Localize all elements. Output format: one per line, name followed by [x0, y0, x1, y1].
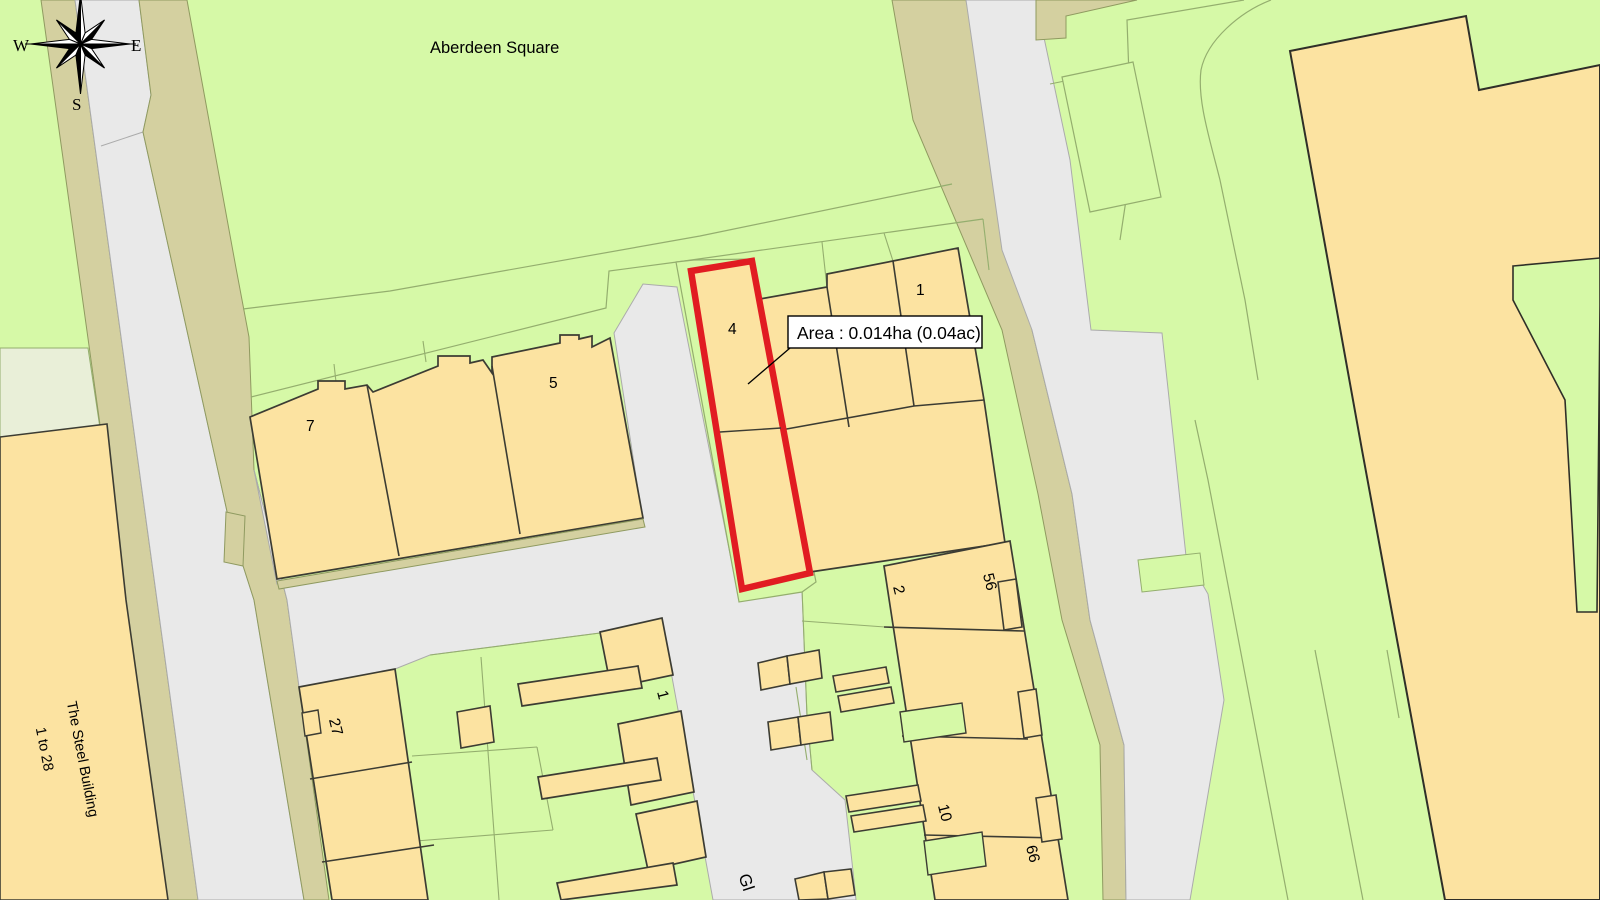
svg-text:1: 1 — [916, 282, 925, 299]
svg-text:Aberdeen Square: Aberdeen Square — [430, 39, 559, 57]
svg-text:4: 4 — [728, 321, 737, 338]
svg-text:Area : 0.014ha (0.04ac): Area : 0.014ha (0.04ac) — [797, 323, 981, 343]
svg-text:7: 7 — [306, 418, 315, 435]
svg-text:E: E — [131, 36, 141, 55]
svg-text:5: 5 — [549, 375, 558, 392]
svg-text:S: S — [72, 95, 81, 114]
svg-text:W: W — [13, 36, 30, 55]
